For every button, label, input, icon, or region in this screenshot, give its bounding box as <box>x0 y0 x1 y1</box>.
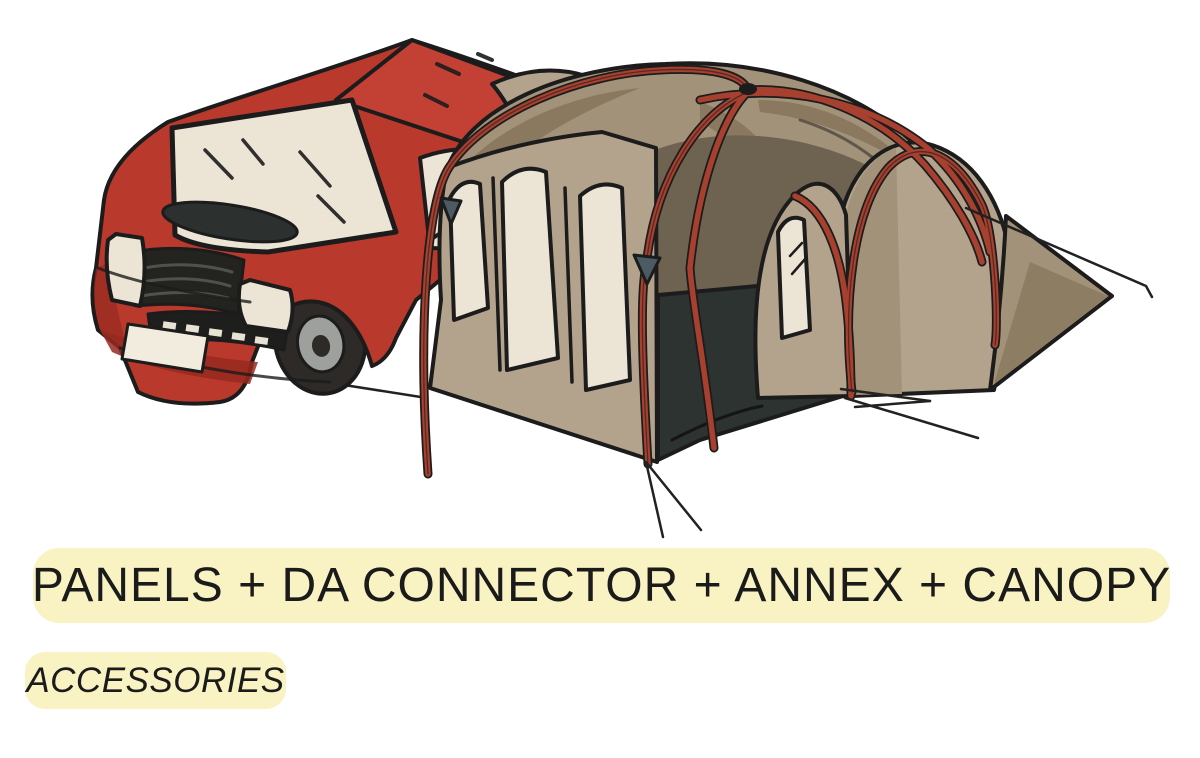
annex-window <box>778 218 810 338</box>
pole-knot <box>739 83 757 95</box>
panel-window-2 <box>502 169 558 370</box>
accessories-label: ACCESSORIES <box>26 661 284 701</box>
headlight-left <box>107 234 145 306</box>
panel-window-3 <box>580 184 630 390</box>
screenshot: PANELS + DA CONNECTOR + ANNEX + CANOPY A… <box>0 0 1200 758</box>
main-title: PANELS + DA CONNECTOR + ANNEX + CANOPY <box>32 558 1171 613</box>
product-illustration <box>0 0 1200 758</box>
headlight-right <box>239 280 293 332</box>
accessories-banner: ACCESSORIES <box>25 652 286 709</box>
main-title-banner: PANELS + DA CONNECTOR + ANNEX + CANOPY <box>33 548 1170 623</box>
